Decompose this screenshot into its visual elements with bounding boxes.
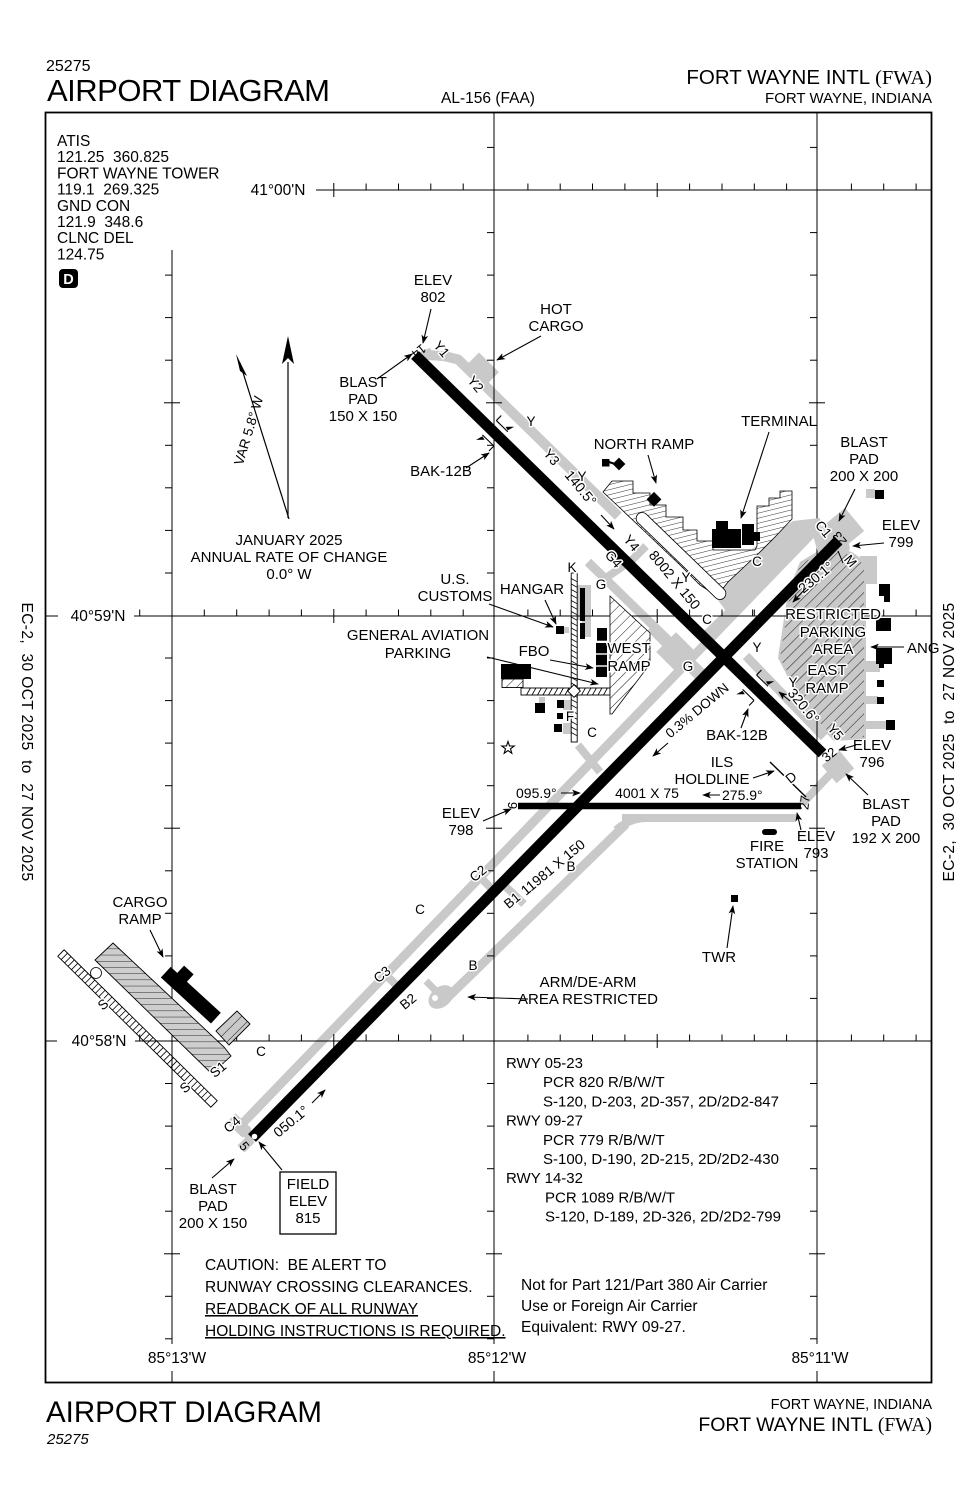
svg-text:RESTRICTED: RESTRICTED [785,606,881,623]
svg-text:RWY 09-27: RWY 09-27 [506,1113,583,1130]
svg-text:AREA: AREA [813,641,854,658]
svg-text:85°12'W: 85°12'W [468,1350,527,1367]
svg-text:ELEV: ELEV [289,1193,327,1210]
svg-text:121.9 348.6: 121.9 348.6 [57,214,143,231]
svg-text:NORTH RAMP: NORTH RAMP [594,436,695,453]
svg-text:PAD: PAD [348,391,378,408]
svg-text:BLAST: BLAST [840,434,888,451]
svg-text:ANG: ANG [907,640,940,657]
svg-text:124.75: 124.75 [57,246,104,263]
svg-text:C: C [587,725,597,740]
svg-text:RAMP: RAMP [118,911,161,928]
svg-text:AL-156 (FAA): AL-156 (FAA) [441,90,535,107]
svg-text:BLAST: BLAST [862,796,910,813]
svg-text:BLAST: BLAST [189,1181,237,1198]
svg-text:CAUTION: BE ALERT TO: CAUTION: BE ALERT TO [205,1257,386,1274]
svg-text:HOLDLINE: HOLDLINE [674,771,749,788]
svg-text:JANUARY 2025: JANUARY 2025 [235,532,342,549]
svg-text:ARM/DE-ARM: ARM/DE-ARM [540,974,637,991]
svg-text:RWY 14-32: RWY 14-32 [506,1170,583,1187]
svg-text:F: F [566,709,574,724]
svg-text:ELEV: ELEV [882,517,920,534]
svg-text:799: 799 [888,534,913,551]
svg-text:27: 27 [796,795,812,811]
svg-text:TWR: TWR [702,949,736,966]
svg-text:RUNWAY CROSSING CLEARANCES.: RUNWAY CROSSING CLEARANCES. [205,1279,473,1296]
svg-text:PAD: PAD [198,1198,228,1215]
svg-text:RAMP: RAMP [805,680,848,697]
svg-text:K: K [567,560,576,575]
svg-text:TERMINAL: TERMINAL [741,413,817,430]
svg-text:Y: Y [681,570,690,585]
svg-text:FORT WAYNE INTL (FWA): FORT WAYNE INTL (FWA) [686,66,932,89]
svg-text:GENERAL AVIATION: GENERAL AVIATION [347,627,489,644]
svg-text:121.25 360.825: 121.25 360.825 [57,149,169,166]
svg-text:815: 815 [295,1210,320,1227]
svg-text:B: B [468,958,477,973]
svg-text:EAST: EAST [807,662,846,679]
svg-text:S-120, D-189, 2D-326, 2D/2D2-7: S-120, D-189, 2D-326, 2D/2D2-799 [545,1209,781,1226]
svg-text:WEST: WEST [607,640,650,657]
svg-text:HOLDING INSTRUCTIONS IS REQUIR: HOLDING INSTRUCTIONS IS REQUIRED. [205,1323,506,1340]
svg-text:HANGAR: HANGAR [500,581,564,598]
svg-text:BAK-12B: BAK-12B [706,727,768,744]
svg-text:FBO: FBO [519,643,550,660]
svg-text:RWY 05-23: RWY 05-23 [506,1055,583,1072]
svg-text:Use or Foreign Air Carrier: Use or Foreign Air Carrier [521,1298,698,1315]
svg-text:4001 X 75: 4001 X 75 [615,785,679,801]
svg-text:AIRPORT DIAGRAM: AIRPORT DIAGRAM [47,73,329,108]
svg-text:40°58'N: 40°58'N [72,1033,127,1050]
svg-text:802: 802 [420,289,445,306]
svg-text:192 X 200: 192 X 200 [852,830,920,847]
svg-text:200 X 200: 200 X 200 [830,468,898,485]
svg-text:BAK-12B: BAK-12B [410,463,472,480]
svg-text:Not for Part 121/Part 380 Air: Not for Part 121/Part 380 Air Carrier [521,1277,767,1294]
svg-text:CUSTOMS: CUSTOMS [418,588,493,605]
svg-text:ELEV: ELEV [442,805,480,822]
svg-text:798: 798 [448,822,473,839]
svg-text:ELEV: ELEV [797,828,835,845]
svg-text:EC-2, 30 OCT 2025 to 27 NOV: EC-2, 30 OCT 2025 to 27 NOV 2025 [18,602,35,881]
svg-text:B: B [566,859,575,874]
svg-text:85°11'W: 85°11'W [791,1350,848,1367]
svg-text:PARKING: PARKING [800,624,866,641]
svg-text:G: G [683,659,694,674]
svg-text:FORT WAYNE TOWER: FORT WAYNE TOWER [57,165,219,182]
svg-text:D: D [63,272,73,288]
svg-text:FIRE: FIRE [750,838,784,855]
svg-text:FORT WAYNE, INDIANA: FORT WAYNE, INDIANA [771,1397,933,1413]
svg-text:AIRPORT DIAGRAM: AIRPORT DIAGRAM [46,1396,322,1429]
svg-text:C: C [256,1044,266,1059]
svg-text:793: 793 [803,845,828,862]
svg-text:150 X 150: 150 X 150 [329,408,397,425]
svg-text:PARKING: PARKING [385,645,451,662]
svg-text:9: 9 [505,801,521,810]
svg-text:C: C [702,612,712,627]
svg-text:PAD: PAD [871,813,901,830]
svg-text:Y: Y [752,640,761,655]
svg-text:GND CON: GND CON [57,198,130,215]
svg-text:CARGO: CARGO [112,894,167,911]
svg-text:200 X 150: 200 X 150 [179,1215,247,1232]
svg-text:G: G [596,577,607,592]
svg-text:119.1 269.325: 119.1 269.325 [57,182,159,199]
svg-text:U.S.: U.S. [440,571,469,588]
svg-text:ATIS: ATIS [57,133,90,150]
svg-text:PCR 1089 R/B/W/T: PCR 1089 R/B/W/T [545,1189,675,1206]
svg-text:0.0° W: 0.0° W [266,566,312,583]
svg-text:STATION: STATION [736,855,799,872]
svg-text:CLNC DEL: CLNC DEL [57,230,134,247]
svg-text:HOT: HOT [540,301,572,318]
svg-text:41°00'N: 41°00'N [251,182,306,199]
svg-text:AREA RESTRICTED: AREA RESTRICTED [518,991,658,1008]
svg-text:095.9°: 095.9° [516,785,557,801]
svg-text:ELEV: ELEV [853,737,891,754]
svg-text:ANNUAL RATE OF CHANGE: ANNUAL RATE OF CHANGE [191,549,388,566]
svg-text:FIELD: FIELD [287,1176,330,1193]
svg-text:Equivalent: RWY 09-27.: Equivalent: RWY 09-27. [521,1319,686,1336]
svg-text:PCR 779 R/B/W/T: PCR 779 R/B/W/T [543,1132,665,1149]
svg-text:PAD: PAD [849,451,879,468]
svg-text:C: C [752,554,762,569]
svg-text:275.9°: 275.9° [722,787,763,803]
svg-text:RAMP: RAMP [607,658,650,675]
svg-text:C: C [415,902,425,917]
svg-text:25275: 25275 [46,1431,89,1448]
svg-text:S-120, D-203, 2D-357, 2D/2D2-8: S-120, D-203, 2D-357, 2D/2D2-847 [543,1093,779,1110]
svg-text:FORT WAYNE, INDIANA: FORT WAYNE, INDIANA [765,90,932,107]
svg-text:ILS: ILS [711,754,734,771]
svg-text:85°13'W: 85°13'W [148,1350,207,1367]
svg-text:ELEV: ELEV [414,272,452,289]
svg-text:Y: Y [788,675,797,690]
svg-text:Y: Y [526,414,535,429]
svg-text:CARGO: CARGO [528,318,583,335]
svg-text:796: 796 [859,754,884,771]
svg-text:Y: Y [577,469,586,484]
svg-text:FORT WAYNE INTL (FWA): FORT WAYNE INTL (FWA) [698,1414,932,1436]
svg-text:EC-2, 30 OCT 2025 to 27 NOV: EC-2, 30 OCT 2025 to 27 NOV 2025 [941,602,958,881]
svg-text:40°59'N: 40°59'N [71,608,126,625]
svg-text:READBACK OF ALL RUNWAY: READBACK OF ALL RUNWAY [205,1301,418,1318]
svg-text:PCR 820 R/B/W/T: PCR 820 R/B/W/T [543,1074,665,1091]
svg-text:S-100, D-190, 2D-215, 2D/2D2-4: S-100, D-190, 2D-215, 2D/2D2-430 [543,1151,779,1168]
